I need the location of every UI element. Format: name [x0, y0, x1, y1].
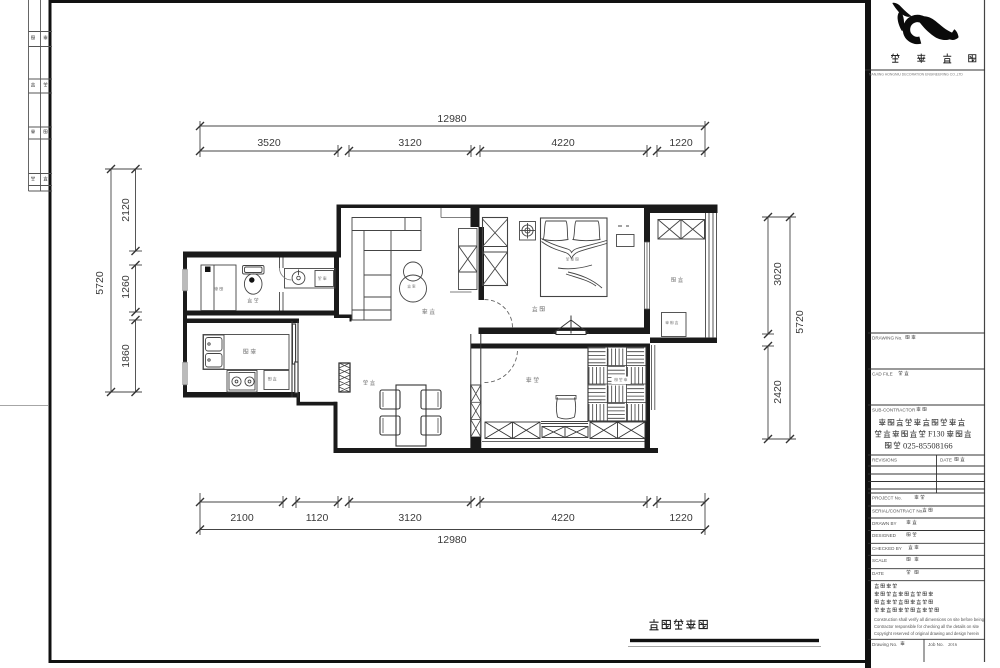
- svg-text:REVISIONS: REVISIONS: [872, 458, 897, 463]
- svg-text:1220: 1220: [669, 512, 693, 524]
- svg-text:Drawing No.: Drawing No.: [872, 642, 897, 647]
- svg-text:F130: F130: [928, 430, 944, 439]
- svg-text:12980: 12980: [437, 534, 466, 546]
- svg-text:Job No.: Job No.: [928, 642, 944, 647]
- svg-text:2420: 2420: [772, 380, 784, 404]
- svg-text:SUB-CONTRACTOR: SUB-CONTRACTOR: [872, 408, 916, 413]
- svg-text:DATE: DATE: [940, 458, 952, 463]
- svg-text:2120: 2120: [120, 198, 132, 222]
- svg-text:Contractor responsible for che: Contractor responsible for checking all …: [874, 624, 980, 629]
- svg-text:4220: 4220: [551, 137, 575, 149]
- svg-text:3120: 3120: [398, 137, 422, 149]
- svg-text:2100: 2100: [230, 512, 254, 524]
- svg-text:NANJING HONGNIU DECORATION ENG: NANJING HONGNIU DECORATION ENGINEERING C…: [869, 73, 963, 77]
- svg-text:SCALE: SCALE: [872, 558, 887, 563]
- svg-text:5720: 5720: [794, 310, 806, 334]
- svg-text:Construction shall verify all: Construction shall verify all dimensions…: [874, 617, 985, 622]
- svg-text:5720: 5720: [94, 271, 106, 295]
- svg-text:SERIAL/CONTRACT No.: SERIAL/CONTRACT No.: [872, 509, 923, 514]
- svg-text:CHECKED BY: CHECKED BY: [872, 546, 902, 551]
- svg-text:DRAWN BY: DRAWN BY: [872, 521, 897, 526]
- svg-text:3020: 3020: [772, 262, 784, 286]
- svg-text:1260: 1260: [120, 275, 132, 299]
- svg-text:3520: 3520: [257, 137, 281, 149]
- svg-text:1120: 1120: [306, 512, 329, 524]
- svg-text:DATE: DATE: [872, 571, 884, 576]
- svg-text:PROJECT No.: PROJECT No.: [872, 496, 902, 501]
- svg-text:025-85508166: 025-85508166: [903, 440, 953, 450]
- svg-text:3120: 3120: [398, 512, 422, 524]
- svg-text:12980: 12980: [437, 113, 466, 125]
- svg-text:2016: 2016: [948, 642, 958, 647]
- svg-text:Copyright reserved of original: Copyright reserved of original drawing a…: [874, 631, 980, 636]
- svg-text:DESIGNED: DESIGNED: [872, 533, 897, 538]
- svg-text:4220: 4220: [551, 512, 575, 524]
- svg-text:DRAWING No.: DRAWING No.: [872, 336, 902, 341]
- svg-text:1220: 1220: [669, 137, 693, 149]
- svg-text:CAD FILE: CAD FILE: [872, 372, 893, 377]
- svg-text:1860: 1860: [120, 344, 132, 368]
